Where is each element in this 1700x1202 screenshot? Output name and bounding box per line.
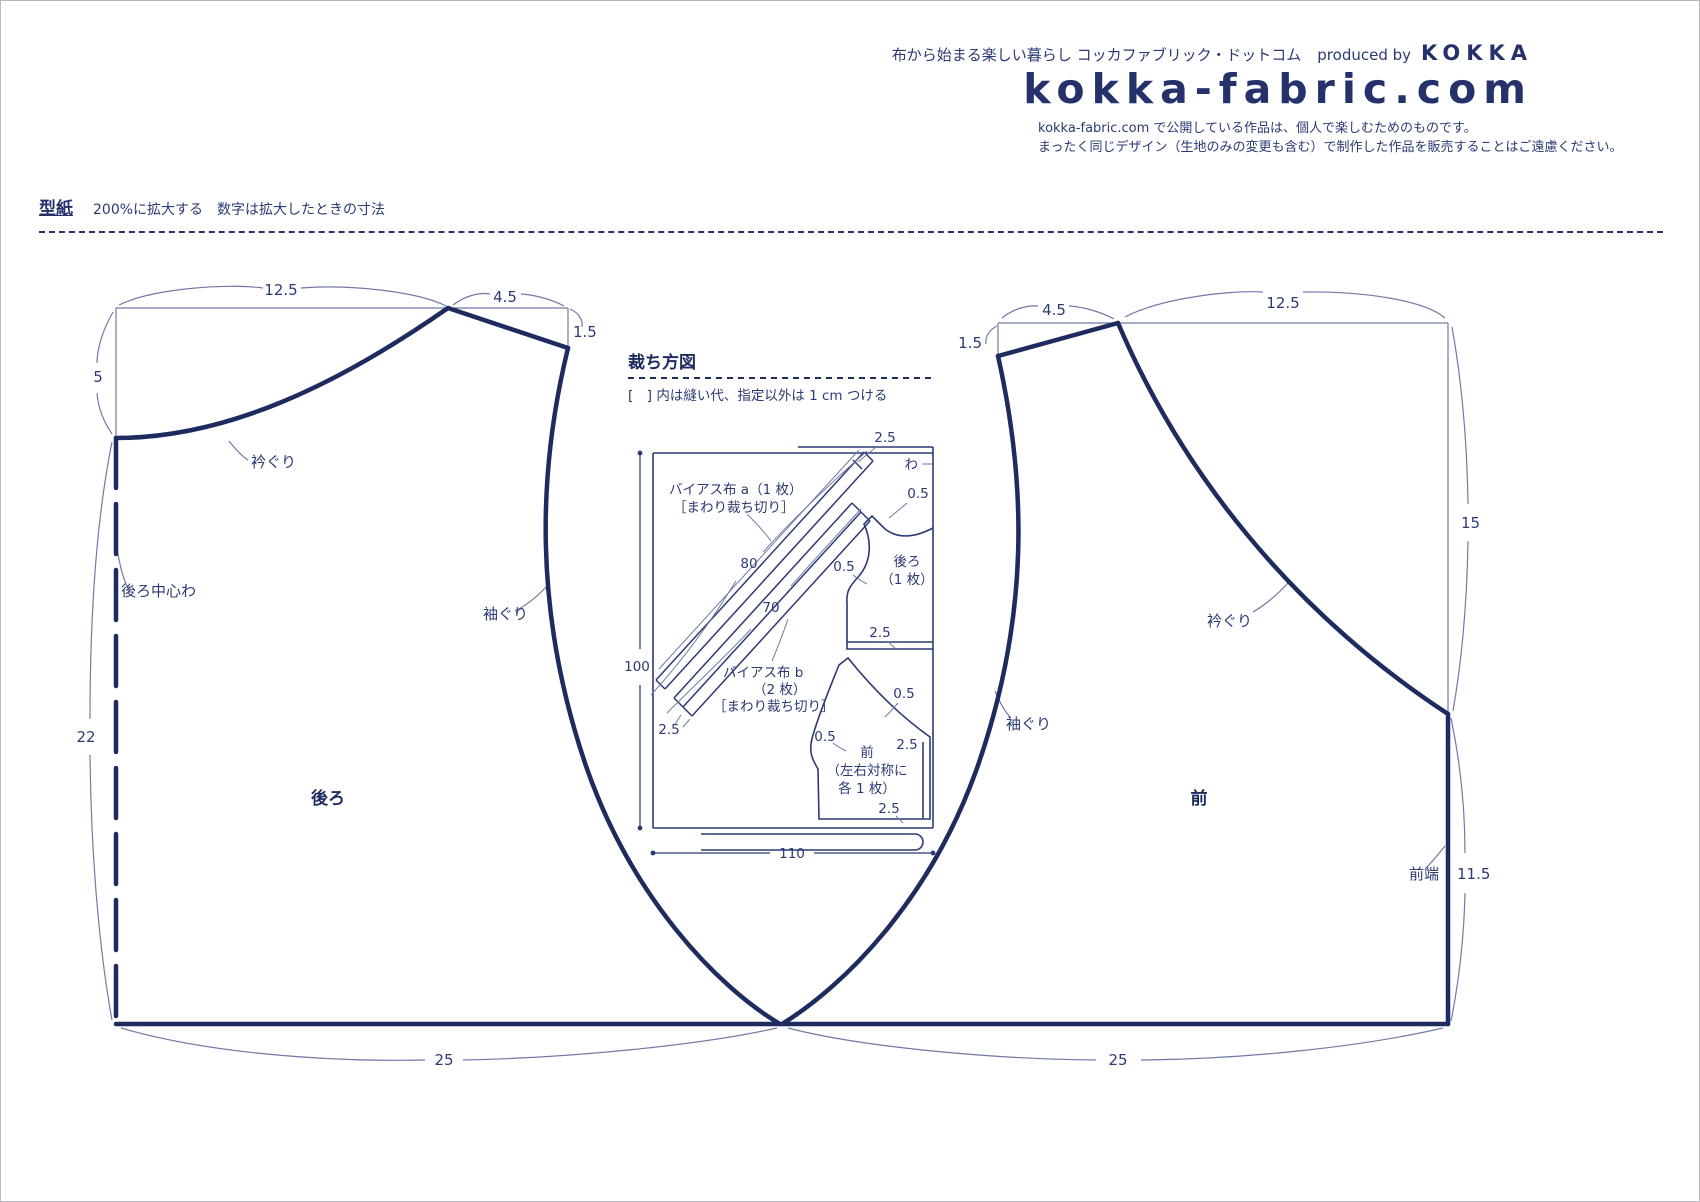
cut-front-hem-allowance: 2.5	[878, 801, 899, 817]
front-dim-side-length: 15	[1461, 514, 1480, 532]
cut-front-count-line2: 各 1 枚）	[838, 781, 896, 797]
bias-a-end-allowance: 2.5	[874, 430, 895, 446]
front-neckline-label: 衿ぐり	[1207, 612, 1252, 630]
back-dim-bottom-width: 25	[434, 1051, 453, 1069]
cutting-layout-title: 裁ち方図	[628, 352, 696, 373]
bias-end-allowance: 2.5	[658, 722, 679, 738]
back-armhole-label: 袖ぐり	[483, 605, 528, 623]
bias-a-label-line2: ［まわり裁ち切り］	[673, 500, 795, 516]
front-shoulder-line	[998, 323, 1118, 356]
pattern-diagram: 12.5 4.5 1.5 5 22 25 衿ぐり 後ろ中心わ 袖ぐり 後ろ	[1, 1, 1700, 1202]
front-dim-bottom-width: 25	[1108, 1051, 1127, 1069]
fabric-width-dim: 110	[779, 846, 805, 862]
front-dim-shoulder-drop: 1.5	[958, 334, 982, 352]
front-piece-labels: 4.5 12.5 1.5 15 11.5 25 衿ぐり 袖ぐり 前端 前	[958, 294, 1490, 1069]
front-edge-label: 前端	[1409, 865, 1439, 883]
back-dim-shoulder-drop: 1.5	[573, 323, 597, 341]
back-dim-side-length: 22	[76, 728, 95, 746]
bias-b-label-line3: ［まわり裁ち切り］	[713, 699, 835, 715]
front-piece-thin-lines	[788, 292, 1468, 1060]
pattern-sheet-page: 布から始まる楽しい暮らし コッカファブリック・ドットコム produced by…	[0, 0, 1700, 1202]
fabric-fold-bracket	[701, 834, 923, 850]
front-dim-top-width: 12.5	[1266, 294, 1299, 312]
back-dim-neck-depth: 5	[93, 368, 103, 386]
bias-a-label-line1: バイアス布 a（1 枚）	[669, 482, 802, 498]
front-dim-front-edge: 11.5	[1457, 865, 1490, 883]
back-piece-labels: 12.5 4.5 1.5 5 22 25 衿ぐり 後ろ中心わ 袖ぐり 後ろ	[76, 281, 596, 1069]
cut-back-armhole-allowance: 0.5	[833, 559, 854, 575]
front-piece-name: 前	[1191, 788, 1208, 809]
back-center-fold-label: 後ろ中心わ	[121, 582, 196, 600]
cut-back-hem-allowance: 2.5	[869, 625, 890, 641]
back-neckline-curve	[116, 308, 448, 438]
cut-front-side-allowance: 2.5	[896, 737, 917, 753]
back-dim-shoulder: 4.5	[493, 288, 517, 306]
front-dim-shoulder: 4.5	[1042, 301, 1066, 319]
fabric-length-dim: 100	[624, 659, 650, 675]
front-armhole-label: 袖ぐり	[1006, 715, 1051, 733]
cut-back-neck-allowance: 0.5	[907, 486, 928, 502]
back-piece-name: 後ろ	[311, 788, 345, 809]
bias-b-label-line2: （2 枚）	[753, 682, 806, 698]
back-neckline-label: 衿ぐり	[251, 453, 296, 471]
cut-front-name: 前	[860, 744, 874, 761]
cut-front-armhole-allowance: 0.5	[814, 729, 835, 745]
bias-b-length: 70	[762, 600, 779, 616]
back-dim-top-width: 12.5	[264, 281, 297, 299]
cut-back-name: 後ろ	[894, 554, 921, 570]
bias-a-length: 80	[740, 556, 757, 572]
cut-front-count-line1: （左右対称に	[827, 763, 908, 779]
cutting-seam-note: [ ] 内は縫い代、指定以外は 1 cm つける	[628, 388, 887, 404]
bias-b-label-line1: バイアス布 b	[723, 665, 803, 681]
cutting-layout: 裁ち方図 [ ] 内は縫い代、指定以外は 1 cm つける	[624, 352, 935, 862]
cut-back-count: （1 枚）	[880, 572, 933, 588]
back-piece-outline	[116, 308, 780, 1024]
front-piece-outline	[782, 323, 1448, 1024]
fabric-fold-label: わ	[905, 457, 919, 473]
cut-front-neck-allowance: 0.5	[893, 686, 914, 702]
front-neckline-curve	[1118, 323, 1448, 714]
back-shoulder-line	[448, 308, 568, 348]
